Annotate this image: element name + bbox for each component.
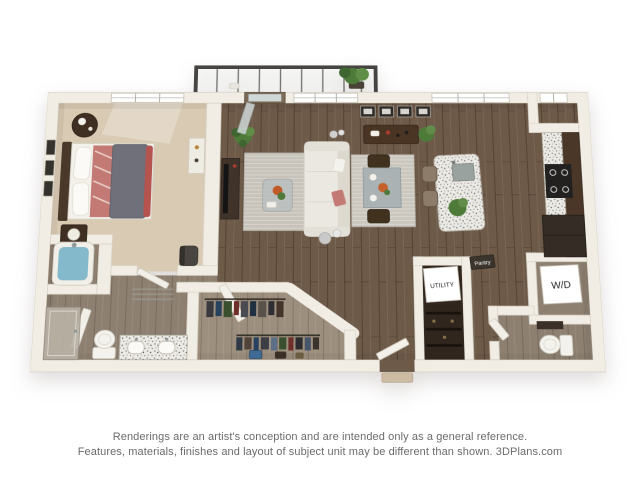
utility-closet: UTILITY [422, 266, 464, 360]
balcony [194, 65, 378, 93]
kitchen-window [432, 93, 510, 102]
tv-console [221, 158, 240, 219]
vanity [119, 335, 187, 359]
storage-bin-small [295, 353, 303, 359]
pantry-tag: Pantry [470, 255, 496, 270]
wall-closet-top [177, 282, 289, 292]
bedroom-window [111, 93, 184, 102]
bed-duvet [109, 145, 148, 219]
balcony-rail-left [194, 65, 199, 93]
bed-pillow [73, 183, 89, 216]
wd-sign: W/D [540, 265, 582, 304]
console-table [364, 125, 419, 143]
entry-step [382, 373, 413, 382]
shower [43, 307, 81, 360]
tray [266, 202, 276, 208]
bar-stool [423, 190, 438, 206]
disclaimer: Renderings are an artist's conception an… [0, 430, 640, 460]
disclaimer-line-1: Renderings are an artist's conception an… [0, 430, 640, 445]
bar-stool [422, 166, 437, 182]
wall-powder-left-b [490, 341, 500, 359]
dining-chair [368, 209, 390, 222]
sofa-back [338, 144, 350, 235]
floorplan-3d-view: UTILITY Pantry W/D [29, 57, 607, 387]
wall-nook-bottom [47, 284, 97, 294]
coffee-table [262, 179, 292, 211]
bathtub [52, 242, 95, 285]
island-sink [452, 163, 475, 181]
entry-threshold [380, 360, 415, 372]
balcony-rail-right [374, 65, 378, 93]
nook-window [540, 93, 568, 102]
wall-nook-right [97, 244, 112, 294]
storage-bin-dark [275, 352, 286, 359]
powder-shelf [537, 321, 564, 329]
dining-set [351, 155, 415, 227]
utility-sign: UTILITY [423, 266, 460, 302]
floorplan-svg: UTILITY Pantry W/D [29, 57, 607, 387]
closet-clothes-rack1 [206, 301, 283, 317]
wd-label: W/D [551, 280, 572, 292]
bed [58, 142, 154, 221]
wall-bedroom-bottom-b [177, 266, 217, 276]
bedroom-chair [179, 246, 198, 266]
refrigerator [542, 215, 586, 257]
floorplan-page: UTILITY Pantry W/D [0, 0, 640, 480]
sink [128, 341, 145, 353]
dining-chair [368, 155, 390, 168]
wall-bedroom-bottom-a [111, 266, 138, 276]
bedroom-shelf [188, 138, 205, 173]
wall-kitchen-nook-bottom [529, 123, 579, 132]
sofa [304, 142, 350, 237]
kitchen-island [433, 154, 485, 232]
wall-closet-right [344, 330, 355, 359]
lamp [67, 229, 80, 241]
living-window [294, 93, 358, 102]
throw-pillow-white [333, 158, 346, 173]
shadow-top [59, 103, 578, 108]
balcony-planter [229, 83, 239, 88]
disclaimer-line-2: Features, materials, finishes and layout… [0, 445, 640, 460]
cooktop [545, 164, 573, 198]
sofa-arm [304, 142, 349, 151]
storage-bin-blue [249, 350, 261, 358]
wall-bath-closet [186, 282, 199, 359]
wd-closet: W/D [540, 265, 582, 304]
toilet [92, 330, 116, 358]
sink [158, 341, 175, 353]
